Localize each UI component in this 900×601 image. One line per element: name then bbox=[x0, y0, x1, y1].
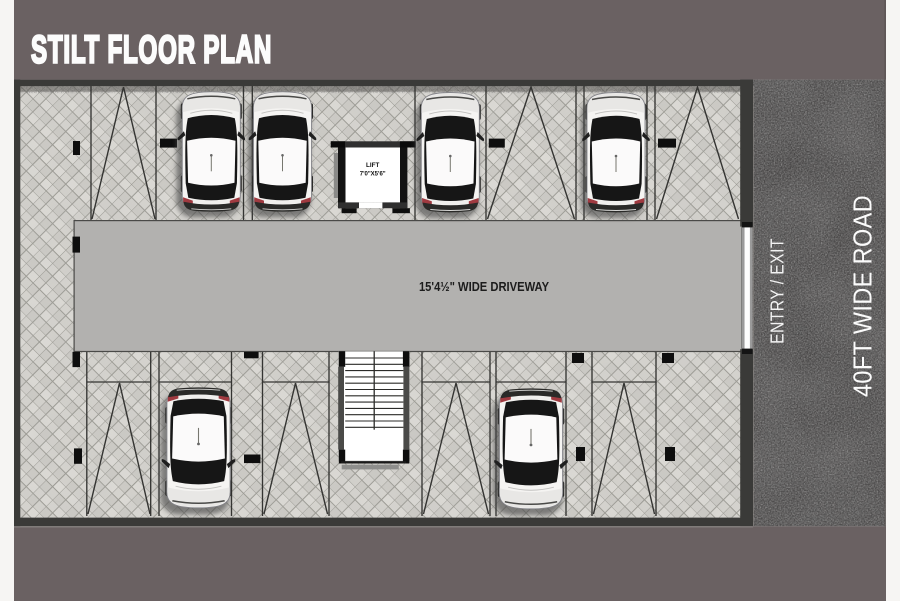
svg-text:LIFT: LIFT bbox=[366, 162, 379, 169]
svg-text:40FT WIDE ROAD: 40FT WIDE ROAD bbox=[849, 195, 877, 397]
svg-text:ENTRY / EXIT: ENTRY / EXIT bbox=[766, 238, 788, 344]
svg-text:STILT FLOOR PLAN: STILT FLOOR PLAN bbox=[31, 28, 272, 71]
svg-text:15'4½" WIDE DRIVEWAY: 15'4½" WIDE DRIVEWAY bbox=[419, 279, 549, 294]
svg-text:7'0"X5'6": 7'0"X5'6" bbox=[360, 172, 386, 178]
